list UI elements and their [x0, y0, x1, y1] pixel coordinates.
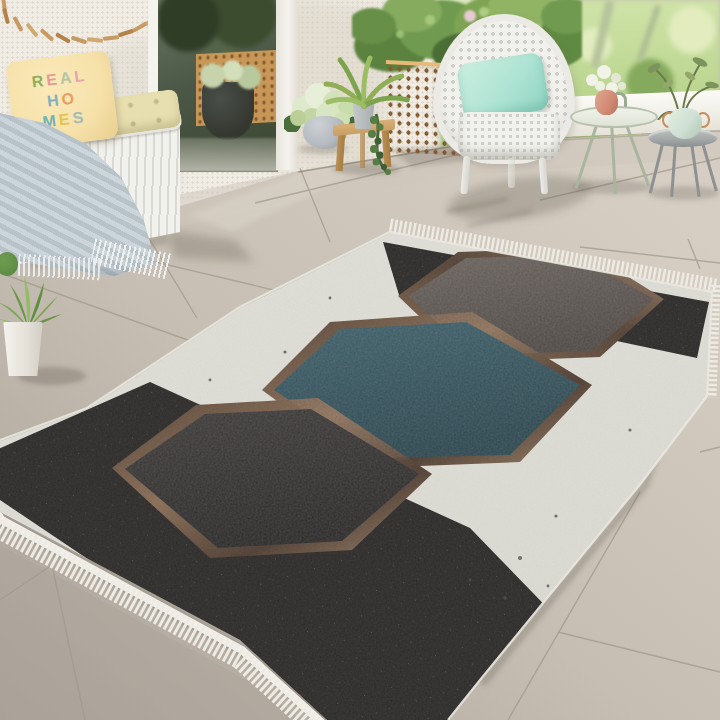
pillow-letter: O: [60, 89, 77, 108]
trailing-ivy: [362, 112, 408, 176]
stool-leg: [336, 131, 346, 171]
patio-product-photo: REALHOMES: [0, 0, 720, 720]
celadon-vase: [668, 108, 702, 139]
pillow-letter: S: [71, 109, 87, 128]
pink-vase: [595, 90, 618, 115]
fern-plant: [320, 52, 412, 112]
pillow-letter: L: [73, 67, 88, 85]
aloe-pot: [2, 322, 44, 376]
wicker-armchair-seat: [458, 112, 560, 160]
chair-leg: [508, 158, 515, 188]
